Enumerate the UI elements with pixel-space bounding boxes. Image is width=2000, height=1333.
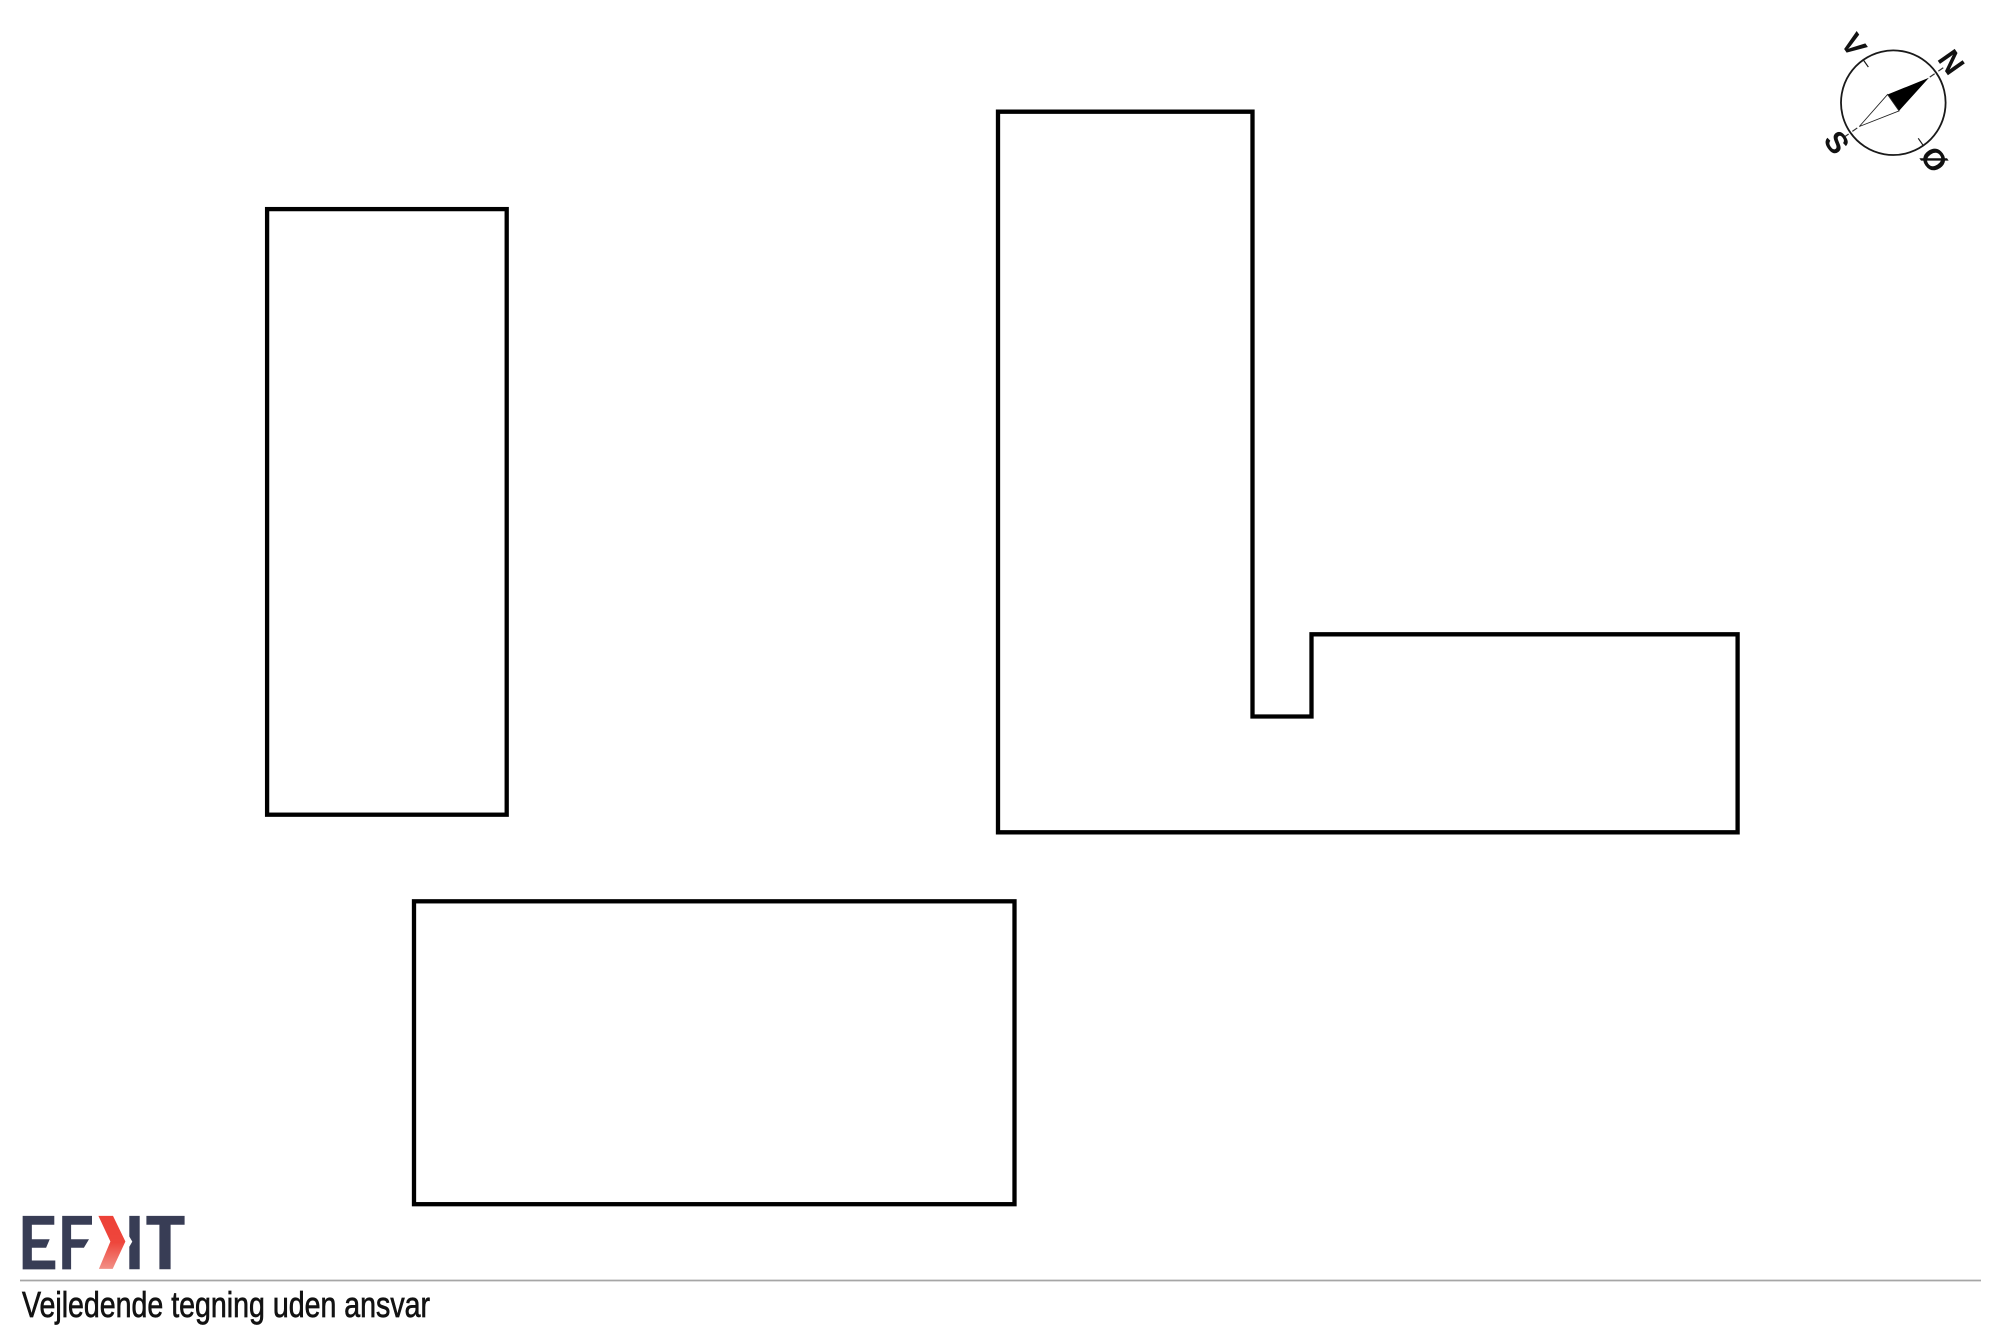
svg-text:N: N: [1931, 44, 1970, 81]
svg-text:Vejledende tegning uden ansvar: Vejledende tegning uden ansvar: [22, 1284, 430, 1325]
svg-text:Ø: Ø: [1913, 141, 1953, 179]
